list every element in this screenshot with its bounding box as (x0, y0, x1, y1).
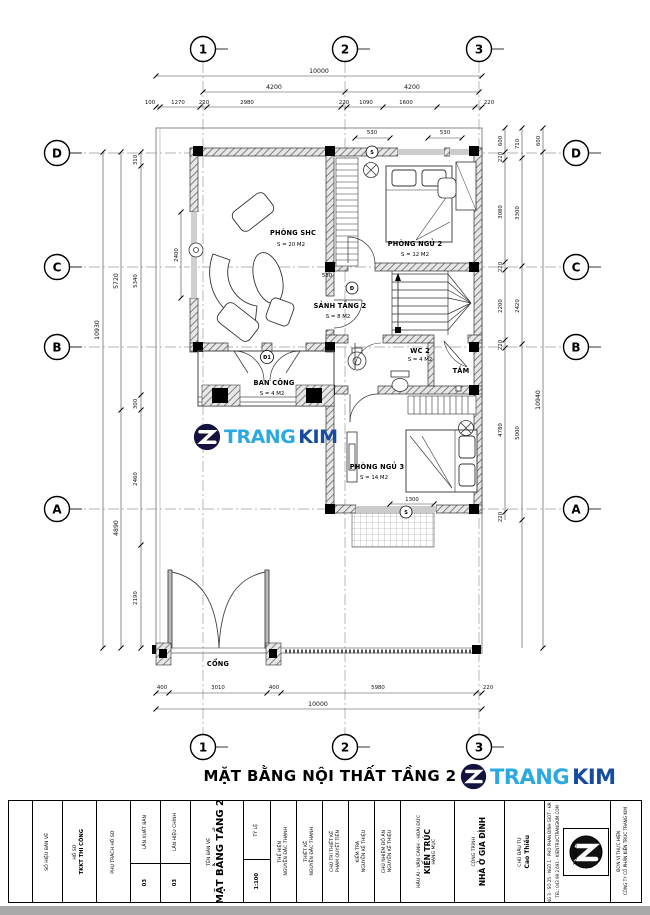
dim-top-d6: 1600 (399, 100, 413, 106)
tb-company: TẦNG 3 - SỐ 25 - NGÕ 1 - PHỐ PHAN ĐÌNH G… (545, 801, 611, 902)
title-block: SỐ HIỆU BẢN VẼ HỒ SƠ TKKT THI CÔNG PHỤ T… (8, 800, 642, 903)
room-wc2-area: S = 4 M2 (408, 357, 433, 363)
room-bancong: BAN CÔNG (254, 378, 295, 387)
wall-unit-living (189, 243, 203, 257)
tag-d: Đ (350, 286, 354, 292)
tb-ho-so: HỒ SƠ TKKT THI CÔNG (63, 801, 97, 902)
room-cong: CỔNG (207, 658, 229, 668)
dim-right-d4: 2200 (498, 299, 504, 313)
drawing-sheet: Đ1 Đ S S PHÒNG SHC S = 20 M2 PHÒNG NGỦ 2… (0, 0, 650, 915)
grid-3-bottom: 3 (475, 741, 483, 755)
dim-right-d3: 220 (498, 261, 504, 272)
grid-C-right: C (572, 261, 581, 275)
tb-r4-label: KIỂM TRA (356, 841, 362, 863)
dim-left-overall: 10930 (94, 320, 101, 340)
dim-top-span1: 4200 (266, 84, 282, 91)
trangkim-icon (193, 423, 221, 451)
dim-right-d5: 220 (498, 339, 504, 350)
tb-so-hieu-label: SỐ HIỆU BẢN VẼ (45, 833, 51, 871)
grid-D-right: D (571, 147, 581, 161)
gate (156, 570, 281, 665)
tb-phu-trach-label: PHỤ TRÁCH HỒ SƠ (111, 830, 117, 874)
dim-right-s2: 2420 (515, 299, 521, 313)
dim-right-d0: 600 (498, 135, 504, 146)
tb-r5-label: CHỦ NHIỆM ĐỒ ÁN (382, 830, 388, 873)
tb-lan-xuat-ban: LẦN XUẤT BẢN 03 (131, 801, 161, 902)
tb-tyle-value: 1:100 (254, 873, 261, 890)
tb-ten-ban-ve: TÊN BẢN VẼ MẶT BẰNG TẦNG 2 TỶ LỆ 1:100 (191, 801, 271, 902)
tb-tbv-label: TÊN BẢN VẼ (207, 838, 213, 866)
wc-fixtures (348, 341, 467, 392)
room-tam: TẮM (453, 365, 470, 375)
ceiling-fan-bedroom2 (364, 163, 379, 178)
grid-A-left: A (52, 503, 62, 517)
tb-r2-value: NGUYỄN ĐẮC THẠNH (310, 827, 316, 876)
tag-d1: Đ1 (263, 355, 271, 361)
tb-r5-value: NGUYỄN KẾ THIỆU (388, 830, 394, 872)
grid-D-left: D (52, 147, 62, 161)
dim-bed-1300: 1300 (405, 497, 419, 503)
dim-right-overall: 10940 (535, 390, 542, 410)
tb-so-hieu: SỐ HIỆU BẢN VẼ (33, 801, 63, 902)
grid-B-left: B (52, 341, 61, 355)
tb-the-hien: THỂ HIỆN NGUYỄN ĐẮC THẠNH (271, 801, 297, 902)
dim-right-top600: 600 (536, 135, 542, 146)
tb-tyle-label: TỶ LỆ (254, 824, 260, 837)
grid-1-top: 1 (199, 43, 207, 57)
wardrobe-bedroom2 (336, 158, 358, 266)
tb-addr3: TEL: 043 99 2 691 - KIENTRUCTRANGKIM.COM (555, 805, 560, 898)
room-sanh-area: S = 8 M2 (326, 314, 351, 320)
tb-ct-label: CÔNG TRÌNH (472, 837, 478, 867)
dim-door-530: 530 (322, 273, 333, 279)
tb-tbv-value: MẶT BẰNG TẦNG 2 (215, 801, 228, 902)
dim-right-s1: 3300 (515, 206, 521, 220)
dim-left-d3: 2460 (133, 472, 139, 486)
tb-cdt-value: Cao Thiều (524, 835, 532, 868)
dim-bot-d2: 400 (269, 685, 280, 691)
tb-chu-tri: CHỦ TRÌ THIẾT KẾ PHẠM QUYẾT TIẾN (323, 801, 349, 902)
dim-right-s3: 5000 (515, 426, 521, 440)
dim-top-d7: 220 (484, 100, 495, 106)
dim-530b: 530 (440, 130, 451, 136)
tb-r1-value: NGUYỄN ĐẮC THẠNH (284, 827, 290, 876)
dim-bot-d0: 400 (157, 685, 168, 691)
watermark-trang: TRANG (224, 426, 295, 448)
watermark-kim: KIM (298, 426, 337, 448)
dim-left-d2: 300 (133, 398, 139, 409)
footer-kim: KIM (572, 765, 615, 789)
watermark-logo: TRANGKIM (193, 423, 338, 451)
dim-right-s0: 710 (515, 138, 521, 149)
tb-r2-label: THIẾT KẾ (304, 841, 310, 862)
dim-left-span2: 4890 (113, 520, 120, 536)
tb-cong-trinh: CÔNG TRÌNH NHÀ Ở GIA ĐÌNH (455, 801, 505, 902)
staircase (392, 271, 471, 335)
tb-dvth-label: ĐƠN VỊ THỰC HIỆN (616, 831, 621, 872)
dim-530a: 530 (367, 130, 378, 136)
dim-bot-d3: 5980 (371, 685, 385, 691)
dim-bot-d4: 220 (483, 685, 494, 691)
grid-2-bottom: 2 (341, 741, 349, 755)
room-ngu3-area: S = 14 M2 (360, 475, 388, 481)
grid-B-right: B (571, 341, 580, 355)
room-wc2: WC 2 (410, 347, 430, 355)
dim-top-span2: 4200 (404, 84, 420, 91)
tb-logo-text: TRANGKIM (573, 841, 579, 866)
footer-logo: TRANGKIM (460, 763, 616, 790)
tb-r1-label: THỂ HIỆN (278, 841, 284, 863)
tb-blank (9, 801, 33, 902)
dim-bot-d1: 3010 (211, 685, 225, 691)
tb-lxb-label: LẦN XUẤT BẢN (143, 815, 149, 849)
tb-phu-trach: PHỤ TRÁCH HỒ SƠ (97, 801, 131, 902)
bed-bedroom2 (386, 166, 452, 242)
grid-A-right: A (571, 503, 581, 517)
tb-r3-label: CHỦ TRÌ THIẾT KẾ (330, 831, 336, 872)
trangkim-icon (460, 763, 487, 790)
terrace-tiles (352, 513, 434, 547)
dim-right-d6: 4780 (498, 423, 504, 437)
room-sanh: SẢNH TẦNG 2 (314, 300, 367, 310)
dim-right-d2: 3080 (498, 205, 504, 219)
dim-right-d7: 220 (498, 511, 504, 522)
tb-lxb-value: 03 (142, 879, 149, 886)
tag-s2: S (404, 510, 408, 516)
tag-s1: S (370, 150, 374, 156)
dim-bot-overall: 10000 (308, 701, 328, 708)
tb-kiem-tra: KIỂM TRA NGUYỄN KẾ THIỆU (349, 801, 375, 902)
tb-thiet-ke: THIẾT KẾ NGUYỄN ĐẮC THẠNH (297, 801, 323, 902)
grid-C-left: C (53, 261, 62, 275)
grid-3-top: 3 (475, 43, 483, 57)
dim-left-span1: 5720 (113, 273, 120, 289)
room-bancong-area: S = 4 M2 (260, 391, 285, 397)
tb-chu-dau-tu: CHỦ ĐẦU TƯ Cao Thiều (505, 801, 545, 902)
dim-window-2400: 2400 (174, 248, 180, 262)
tb-ho-so-value: TKKT THI CÔNG (79, 829, 86, 874)
grid-2-top: 2 (341, 43, 349, 57)
room-ngu3: PHÒNG NGỦ 3 (350, 461, 405, 471)
room-shc: PHÒNG SHC (270, 228, 316, 237)
dim-left-d0: 310 (133, 154, 139, 165)
tb-addr2: TẦNG 3 - SỐ 25 - NGÕ 1 - PHỐ PHAN ĐÌNH G… (547, 801, 552, 902)
tb-hang-muc: HẬU ÁI - VÂN CANH - HOÀI ĐỨC KIẾN TRÚC H… (401, 801, 455, 902)
tb-logo-box: TRANGKIM (563, 828, 609, 876)
tb-r3-value: PHẠM QUYẾT TIẾN (336, 830, 342, 872)
dim-top-d4: 220 (339, 100, 350, 106)
tb-r4-value: NGUYỄN KẾ THIỆU (362, 830, 368, 872)
tb-ct-value: NHÀ Ở GIA ĐÌNH (478, 817, 487, 886)
floor-plan-drawing: Đ1 Đ S S PHÒNG SHC S = 20 M2 PHÒNG NGỦ 2… (0, 0, 650, 800)
tb-lhc-value: 03 (172, 879, 179, 886)
dim-top-d5: 1090 (359, 100, 373, 106)
tb-lan-hieu-chinh: LẦN HIỆU CHỈNH 03 (161, 801, 191, 902)
tb-addr1: CÔNG TY CỔ PHẦN KIẾN TRÚC TRANG KIM (623, 807, 628, 895)
trangkim-icon: TRANGKIM (568, 834, 604, 870)
room-ngu2: PHÒNG NGỦ 2 (388, 238, 443, 248)
dim-top-overall: 10000 (309, 68, 329, 75)
room-shc-area: S = 20 M2 (277, 242, 305, 248)
tb-hang-muc-label: HẠNG MỤC (432, 839, 438, 865)
footer-trang: TRANG (490, 765, 569, 789)
grid-1-bottom: 1 (199, 741, 207, 755)
tv-cabinet (347, 432, 357, 482)
dim-top-d0: 100 (145, 100, 156, 106)
bed-bedroom3 (406, 430, 477, 492)
sheet-bottom-edge (0, 906, 650, 915)
dim-left-d4: 2190 (133, 591, 139, 605)
room-ngu2-area: S = 12 M2 (401, 252, 429, 258)
wardrobe-bedroom3 (408, 396, 476, 414)
dim-left-d1: 5340 (133, 274, 139, 288)
tb-chu-nhiem: CHỦ NHIỆM ĐỒ ÁN NGUYỄN KẾ THIỆU (375, 801, 401, 902)
tb-don-vi: ĐƠN VỊ THỰC HIỆN CÔNG TY CỔ PHẦN KIẾN TR… (611, 801, 633, 902)
tb-dia-diem: HẬU ÁI - VÂN CANH - HOÀI ĐỨC (417, 815, 423, 888)
dim-top-d3: 2980 (240, 100, 254, 106)
tb-lhc-label: LẦN HIỆU CHỈNH (173, 813, 179, 851)
dim-right-d1: 220 (498, 151, 504, 162)
dim-top-d1: 1270 (171, 100, 185, 106)
dim-top-d2: 220 (199, 100, 210, 106)
